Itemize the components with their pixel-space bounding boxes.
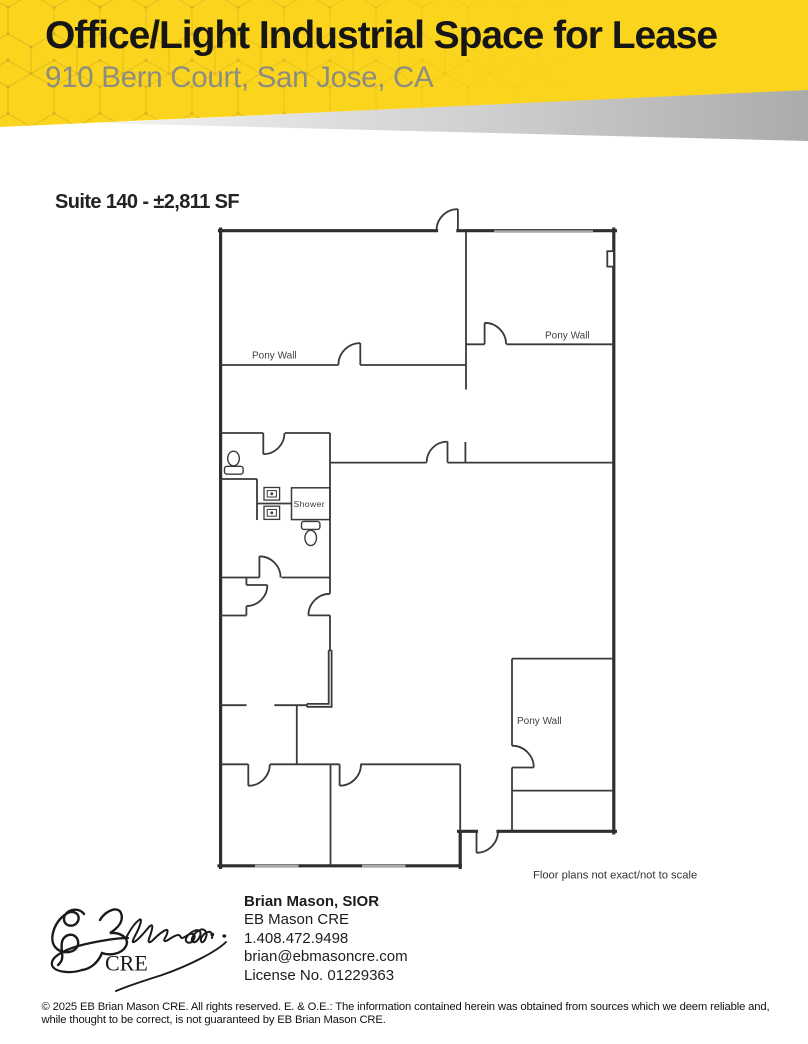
svg-text:Floor plans not exact/not to s: Floor plans not exact/not to scale — [533, 870, 697, 882]
svg-text:CRE: CRE — [105, 951, 148, 976]
svg-text:Pony Wall: Pony Wall — [545, 331, 590, 342]
svg-text:Pony Wall: Pony Wall — [517, 716, 562, 727]
svg-text:Shower: Shower — [294, 499, 326, 509]
svg-text:Pony Wall: Pony Wall — [252, 351, 297, 362]
